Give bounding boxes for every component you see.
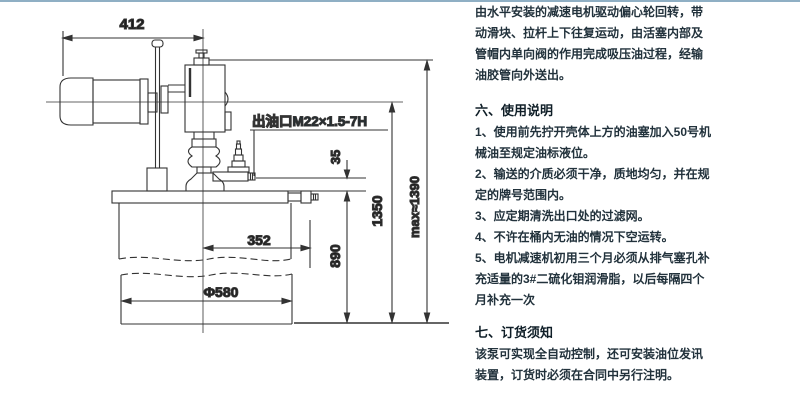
dimension-352: 352 [204,220,310,268]
intro-paragraph: 由水平安装的减速电机驱动偏心轮回转，带 动滑块、拉杆上下往复运动，由活塞内部及 … [475,2,720,86]
dimension-890: 890 [327,192,350,322]
pump-technical-drawing: 412 出油口M22×1.5-7H 35 352 [0,0,470,409]
section7-body: 该泵可实现全自动控制，还可安装油位发讯 装置，订货时必须在合同中另行注明。 [475,344,720,386]
text-line: 该泵可实现全自动控制，还可安装油位发讯 [475,344,720,365]
barrel-lid [112,191,318,203]
dimension-1350: 1350 [369,103,395,322]
section6-body: 1、使用前先拧开壳体上方的油塞加入50号机 械油至规定油标液位。 2、输送的介质… [475,122,720,311]
dim-412-label: 412 [119,16,144,33]
text-line: 油胶管向外送出。 [475,65,720,86]
dimension-35: 35 [256,150,366,191]
text-line: 4、不许在桶内无油的情况下空运转。 [475,227,720,248]
pump-body [185,50,231,139]
text-line: 械油至规定油标液位。 [475,143,720,164]
bellows [186,139,224,191]
text-line: 1、使用前先拧开壳体上方的油塞加入50号机 [475,122,720,143]
text-line: 5、电机减速机初用三个月必须从排气塞孔补 [475,248,720,269]
text-line: 3、应定期清洗出口处的过滤网。 [475,206,720,227]
outlet-port-label: 出油口M22×1.5-7H [250,113,388,176]
support-rod [147,40,167,191]
dim-1350-label: 1350 [369,195,385,226]
outlet-valve [213,141,255,181]
dimension-412: 412 [63,16,203,76]
dim-phi580-label: Φ580 [204,284,239,300]
outlet-port-text: 出油口M22×1.5-7H [252,113,367,129]
text-line: 定的牌号范围内。 [475,185,720,206]
text-line: 月补充一次 [475,290,720,311]
dim-352-label: 352 [247,232,271,248]
motor [60,78,185,125]
section6-heading: 六、使用说明 [475,100,553,121]
text-line: 管帽内单向阀的作用完成吸压油过程，经输 [475,44,720,65]
text-line: 装置，订货时必须在合同中另行注明。 [475,365,720,386]
section7-heading: 七、订货须知 [475,322,553,343]
text-line: 由水平安装的减速电机驱动偏心轮回转，带 [475,2,720,23]
text-line: 动滑块、拉杆上下往复运动，由活塞内部及 [475,23,720,44]
manual-page: 412 出油口M22×1.5-7H 35 352 [0,0,800,409]
oil-barrel [119,203,449,324]
text-line: 2、输送的介质必须干净，质地均匀，并在规 [475,164,720,185]
text-line: 充适量的3#二硫化钼润滑脂，以后每隔四个 [475,269,720,290]
dim-890-label: 890 [327,244,343,268]
dimension-phi580: Φ580 [122,284,291,304]
dim-35-label: 35 [328,150,343,164]
dim-max1390-label: max≈1390 [407,176,422,238]
